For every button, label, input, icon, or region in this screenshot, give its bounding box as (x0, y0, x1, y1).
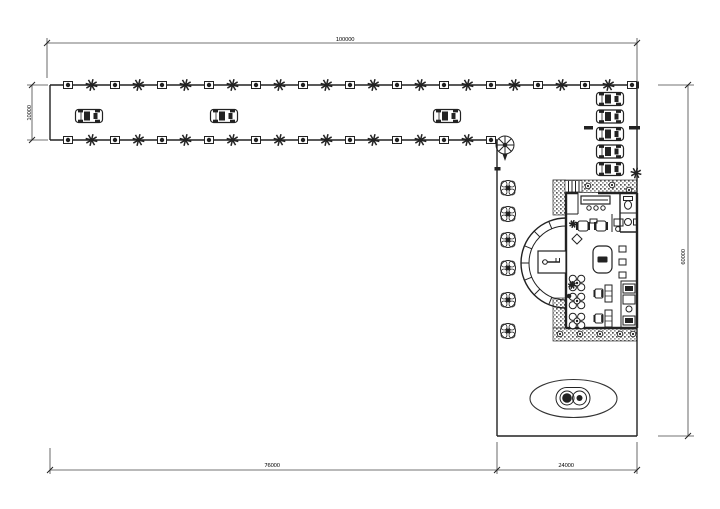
storage-squares (619, 246, 626, 278)
dim-bottom: 76000 24000 (47, 442, 640, 474)
wall-column (584, 126, 593, 130)
kitchen-counter (621, 281, 637, 329)
sink-icon (625, 219, 637, 226)
site-plan-sheet: 100000 10000 60000 76000 24000 (0, 0, 720, 509)
right-wall-tree-icon (631, 168, 642, 179)
parking-cars (597, 93, 624, 176)
fountain (530, 380, 617, 418)
dim-top: 100000 (44, 37, 640, 90)
dim-label-left: 10000 (27, 104, 33, 120)
wall-column (629, 126, 640, 130)
porch-plant-icon (572, 234, 582, 244)
drive-cars (76, 110, 461, 123)
fountain-jet-right (577, 395, 583, 401)
dim-right: 60000 (658, 82, 694, 439)
entrance-steps (565, 181, 582, 193)
dim-label-bottom-right: 24000 (558, 463, 574, 469)
massage-table (593, 246, 612, 273)
fountain-jet-left (562, 393, 572, 403)
office-workstations (576, 214, 623, 232)
bottom-paving (553, 328, 637, 341)
wing-tree-row (501, 181, 516, 339)
dim-left: 10000 (27, 82, 48, 143)
dim-label-right: 60000 (681, 248, 687, 264)
dim-label-bottom-left: 76000 (264, 463, 280, 469)
floor-plan-canvas: 100000 10000 60000 76000 24000 (0, 0, 720, 509)
wall-column (495, 167, 501, 171)
toilet-icon (624, 197, 633, 210)
dim-label-top: 100000 (336, 37, 355, 43)
building (521, 193, 637, 329)
reception-stools (587, 206, 605, 210)
reception-desk (581, 196, 610, 210)
desk-sets-group (594, 285, 613, 327)
